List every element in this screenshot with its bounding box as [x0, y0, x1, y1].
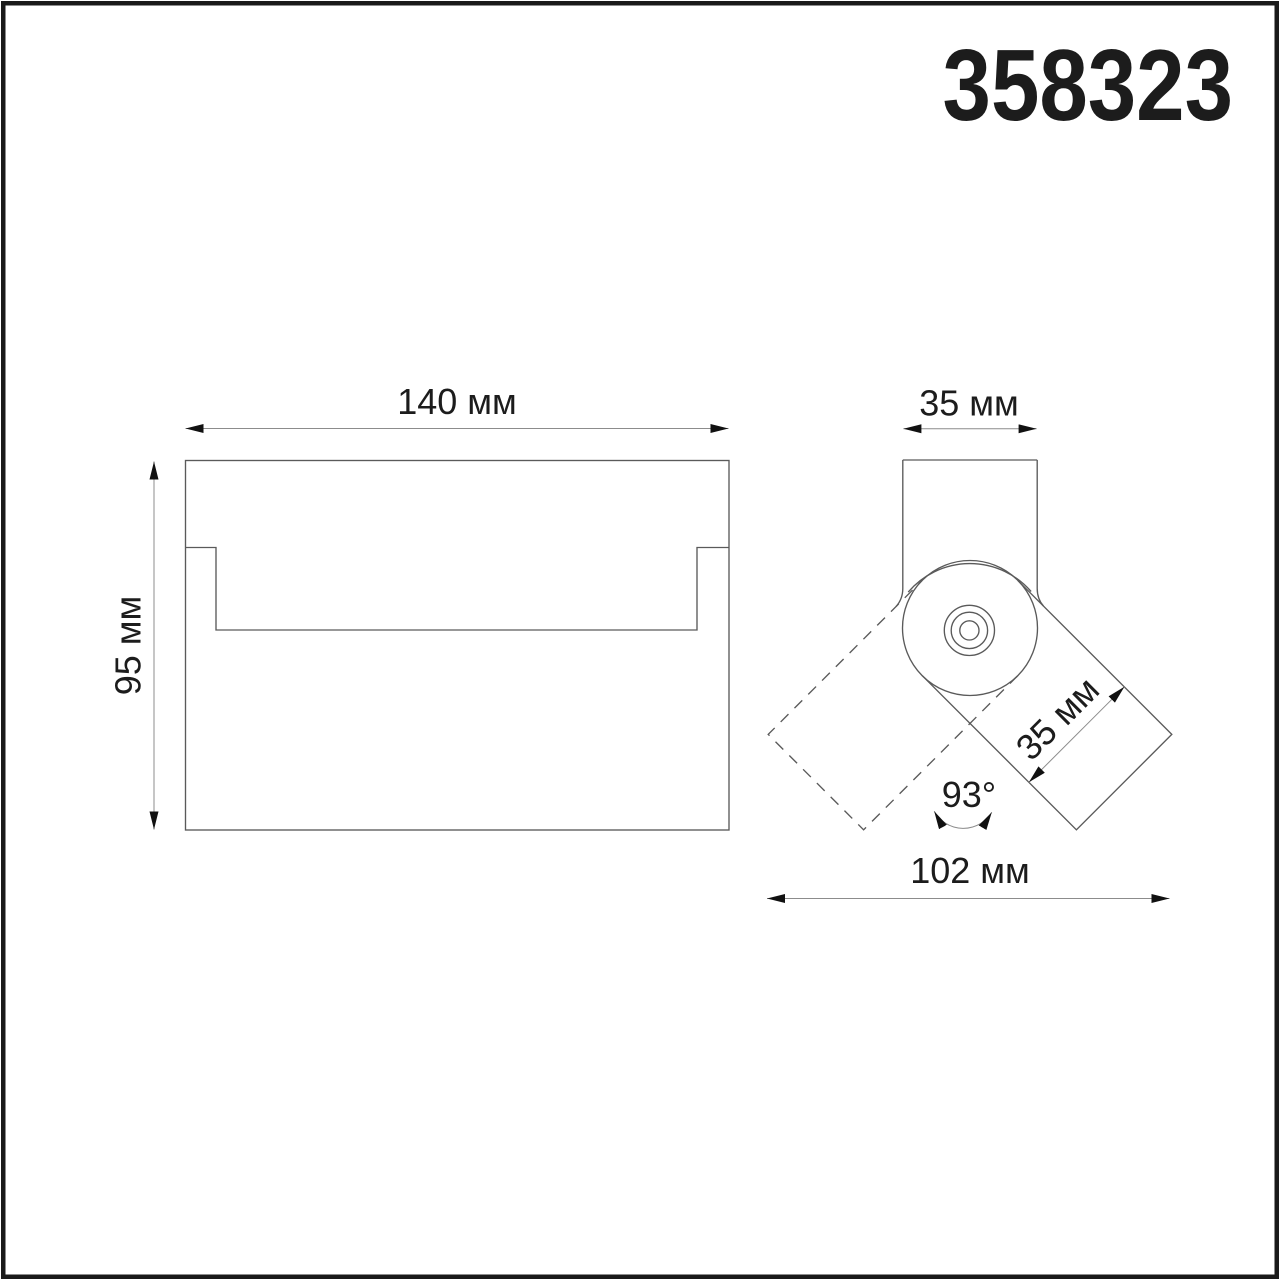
- svg-text:140 мм: 140 мм: [397, 381, 517, 422]
- svg-text:93°: 93°: [942, 774, 996, 815]
- svg-text:35 мм: 35 мм: [919, 383, 1019, 424]
- svg-text:358323: 358323: [943, 29, 1233, 141]
- svg-text:102 мм: 102 мм: [910, 850, 1030, 891]
- svg-text:95 мм: 95 мм: [108, 596, 149, 696]
